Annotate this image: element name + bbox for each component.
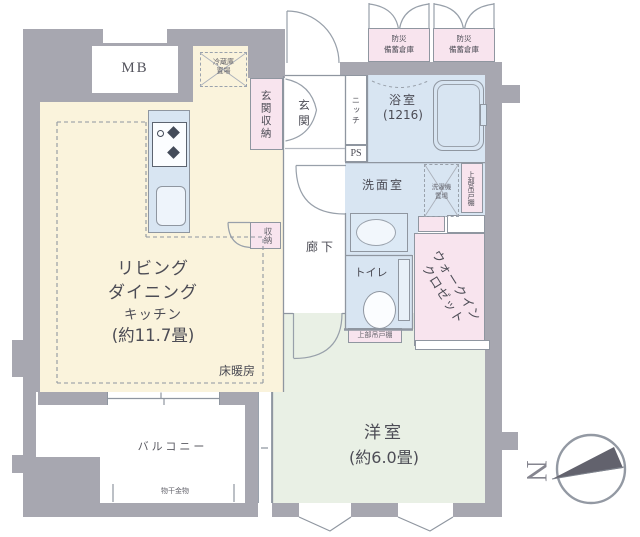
kitchen-sink xyxy=(156,186,186,226)
wall-balcony-bottom xyxy=(100,503,258,517)
bedroom-label: 洋室 (約6.0畳) xyxy=(318,421,450,469)
ps-box-lower xyxy=(447,215,485,233)
bathroom-label: 浴室 (1216) xyxy=(374,93,432,123)
disaster-storage-1-label: 防災 備蓄倉庫 xyxy=(368,33,430,56)
compass xyxy=(552,435,625,503)
ldk-label: リビング ダイニング キッチン (約11.7畳) xyxy=(73,258,233,348)
bedroom-window-left xyxy=(299,503,351,517)
compass-north-label: N xyxy=(515,450,557,492)
closet-label: 収納 xyxy=(261,224,272,247)
wall-left-protrusion-top xyxy=(12,340,23,377)
bathtub-inner xyxy=(437,84,480,147)
bedroom-room-ext xyxy=(272,392,283,503)
entrance-label: 玄関 xyxy=(296,92,311,136)
bathtub-faucet xyxy=(480,104,487,126)
wall-left xyxy=(23,102,40,392)
entrance-storage-label: 玄関収納 xyxy=(258,85,272,145)
toilet-label: トイレ xyxy=(350,266,392,280)
wall-notch xyxy=(103,29,167,43)
wic-label: ウォークイン クロゼット xyxy=(404,244,496,336)
wall-balcony-right xyxy=(245,392,258,517)
wall-right-protrusion-bottom xyxy=(500,432,518,450)
washer-label: 洗濯機 置場 xyxy=(424,183,459,201)
compass-needle xyxy=(552,447,623,479)
wall-mb-left xyxy=(23,46,92,102)
floor-heating-label: 床暖房 xyxy=(213,364,261,380)
washbasin-bowl xyxy=(356,219,396,246)
upper-cabinet-toilet-label: 上部吊戸棚 xyxy=(348,328,402,343)
small-cabinet-box xyxy=(418,216,445,232)
drying-fixture-label: 物干金物 xyxy=(148,487,202,496)
wall-right-protrusion-top xyxy=(502,85,520,103)
disaster-storage-2-label: 防災 備蓄倉庫 xyxy=(433,33,495,56)
wall-mb-bottom xyxy=(92,93,193,102)
ps-upper-label: PS xyxy=(345,145,367,162)
stove-knob xyxy=(157,130,164,137)
wall-balcony-corner xyxy=(23,457,100,517)
wall-left-lower xyxy=(23,392,36,457)
floor-plan: MB 冷蔵庫 置場 玄関収納 玄関 ニッチ PS 浴室 (1216) 防災 備蓄… xyxy=(0,0,640,537)
balcony-divider-strip xyxy=(258,392,272,503)
wall-entrance-left xyxy=(248,46,285,78)
wall-entrance-right xyxy=(340,62,502,75)
meter-box-label: MB xyxy=(92,59,178,79)
corridor-label: 廊下 xyxy=(300,240,342,256)
upper-cabinet-wash-label: 上部吊戸棚 xyxy=(466,165,475,211)
fridge-label: 冷蔵庫 置場 xyxy=(200,58,247,77)
toilet-bowl xyxy=(363,291,396,329)
wall-left-protrusion-bottom xyxy=(12,455,23,473)
niche-label: ニッチ xyxy=(350,84,360,138)
compass-circle xyxy=(557,435,625,503)
wic-door xyxy=(415,340,490,350)
ldk-window xyxy=(107,392,220,405)
washroom-label: 洗面室 xyxy=(352,178,414,194)
bedroom-window-right xyxy=(398,503,453,517)
balcony-label: バルコニー xyxy=(115,440,230,454)
